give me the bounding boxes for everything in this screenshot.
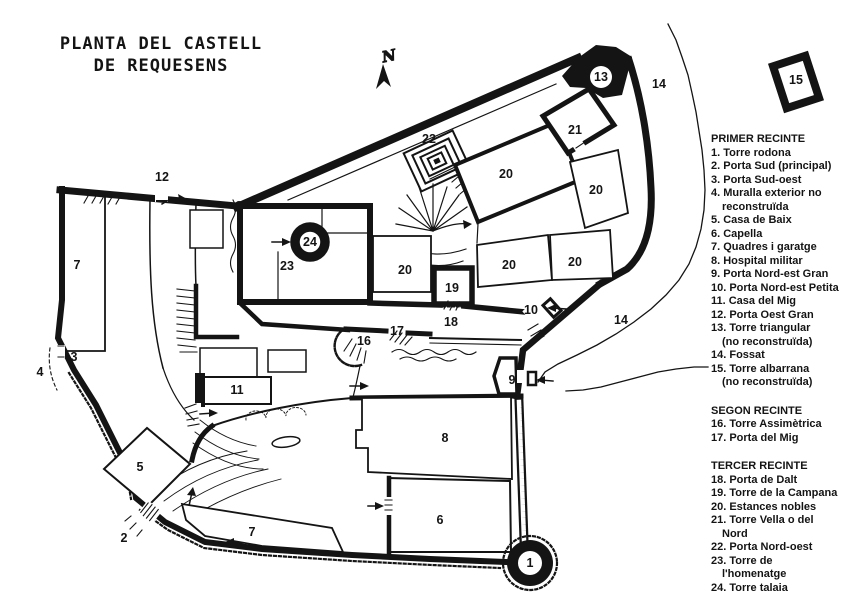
legend-item: 18. Porta de Dalt bbox=[711, 474, 850, 488]
page-title-line2: DE REQUESENS bbox=[44, 55, 278, 77]
map-label-13: 13 bbox=[594, 70, 608, 84]
map-label-3: 3 bbox=[71, 350, 78, 364]
map-label-20: 20 bbox=[589, 183, 603, 197]
map-label-24: 24 bbox=[303, 235, 317, 249]
map-label-20: 20 bbox=[568, 255, 582, 269]
legend: PRIMER RECINTE 1. Torre rodona 2. Porta … bbox=[711, 133, 850, 610]
legend-item: 13. Torre triangular (no reconstruïda) bbox=[711, 322, 850, 349]
map-label-6: 6 bbox=[437, 513, 444, 527]
map-label-19: 19 bbox=[445, 281, 459, 295]
map-label-1: 1 bbox=[527, 556, 534, 570]
legend-heading: PRIMER RECINTE bbox=[711, 133, 850, 147]
gate-3-porta-sudoest bbox=[55, 345, 65, 358]
legend-item: 17. Porta del Mig bbox=[711, 432, 850, 446]
legend-item: 5. Casa de Baix bbox=[711, 214, 850, 228]
east-wall-crenellated bbox=[519, 402, 524, 540]
map-label-7: 7 bbox=[74, 258, 81, 272]
legend-item: 1. Torre rodona bbox=[711, 147, 850, 161]
legend-item: 22. Porta Nord-oest bbox=[711, 541, 850, 555]
map-label-20: 20 bbox=[499, 167, 513, 181]
north-arrow: N bbox=[376, 46, 399, 89]
castle-map-page: N 13141522212020122423202020191014181716… bbox=[0, 0, 850, 614]
legend-item: 21. Torre Vella o del Nord bbox=[711, 514, 850, 541]
north-label: N bbox=[379, 46, 398, 67]
map-label-18: 18 bbox=[444, 315, 458, 329]
legend-item: 4. Muralla exterior no reconstruïda bbox=[711, 187, 850, 214]
map-label-20: 20 bbox=[502, 258, 516, 272]
map-label-12: 12 bbox=[155, 170, 169, 184]
map-label-4: 4 bbox=[37, 365, 44, 379]
legend-item: 16. Torre Assimètrica bbox=[711, 418, 850, 432]
building-5-casa-de-baix bbox=[104, 428, 190, 506]
page-title-line1: PLANTA DEL CASTELL bbox=[44, 33, 278, 55]
legend-item: 2. Porta Sud (principal) bbox=[711, 160, 850, 174]
legend-item: 12. Porta Oest Gran bbox=[711, 309, 850, 323]
map-label-21: 21 bbox=[568, 123, 582, 137]
legend-heading: TERCER RECINTE bbox=[711, 460, 850, 474]
legend-section-primer: PRIMER RECINTE 1. Torre rodona 2. Porta … bbox=[711, 133, 850, 390]
map-label-17: 17 bbox=[390, 324, 404, 338]
legend-item: 11. Casa del Mig bbox=[711, 295, 850, 309]
legend-item: 7. Quadres i garatge bbox=[711, 241, 850, 255]
legend-heading: SEGON RECINTE bbox=[711, 405, 850, 419]
map-label-9: 9 bbox=[509, 373, 516, 387]
map-label-5: 5 bbox=[137, 460, 144, 474]
map-label-16: 16 bbox=[357, 334, 371, 348]
legend-item: 24. Torre talaia bbox=[711, 582, 850, 596]
legend-section-segon: SEGON RECINTE 16. Torre Assimètrica 17. … bbox=[711, 405, 850, 446]
building-8-hospital bbox=[356, 397, 512, 479]
map-label-11: 11 bbox=[230, 383, 243, 397]
map-label-23: 23 bbox=[280, 259, 294, 273]
legend-item: 14. Fossat bbox=[711, 349, 850, 363]
legend-item: 10. Porta Nord-est Petita bbox=[711, 282, 850, 296]
map-label-22: 22 bbox=[422, 132, 436, 146]
rubble-strip bbox=[190, 200, 242, 274]
legend-item: 23. Torre de l'homenatge bbox=[711, 555, 850, 582]
page-title: PLANTA DEL CASTELL DE REQUESENS bbox=[44, 33, 278, 77]
map-label-7: 7 bbox=[249, 525, 256, 539]
legend-section-tercer: TERCER RECINTE 18. Porta de Dalt 19. Tor… bbox=[711, 460, 850, 595]
map-label-8: 8 bbox=[442, 431, 449, 445]
legend-item: 19. Torre de la Campana bbox=[711, 487, 850, 501]
legend-item: 6. Capella bbox=[711, 228, 850, 242]
legend-item: 20. Estances nobles bbox=[711, 501, 850, 515]
map-label-14: 14 bbox=[614, 313, 628, 327]
legend-item: 15. Torre albarrana (no reconstruïda) bbox=[711, 363, 850, 390]
map-label-2: 2 bbox=[121, 531, 128, 545]
map-label-10: 10 bbox=[524, 303, 538, 317]
map-label-20: 20 bbox=[398, 263, 412, 277]
legend-item: 8. Hospital militar bbox=[711, 255, 850, 269]
map-label-14: 14 bbox=[652, 77, 666, 91]
building-11-casa-del-mig bbox=[195, 348, 306, 405]
map-label-15: 15 bbox=[789, 73, 803, 87]
legend-item: 9. Porta Nord-est Gran bbox=[711, 268, 850, 282]
legend-item: 3. Porta Sud-oest bbox=[711, 174, 850, 188]
